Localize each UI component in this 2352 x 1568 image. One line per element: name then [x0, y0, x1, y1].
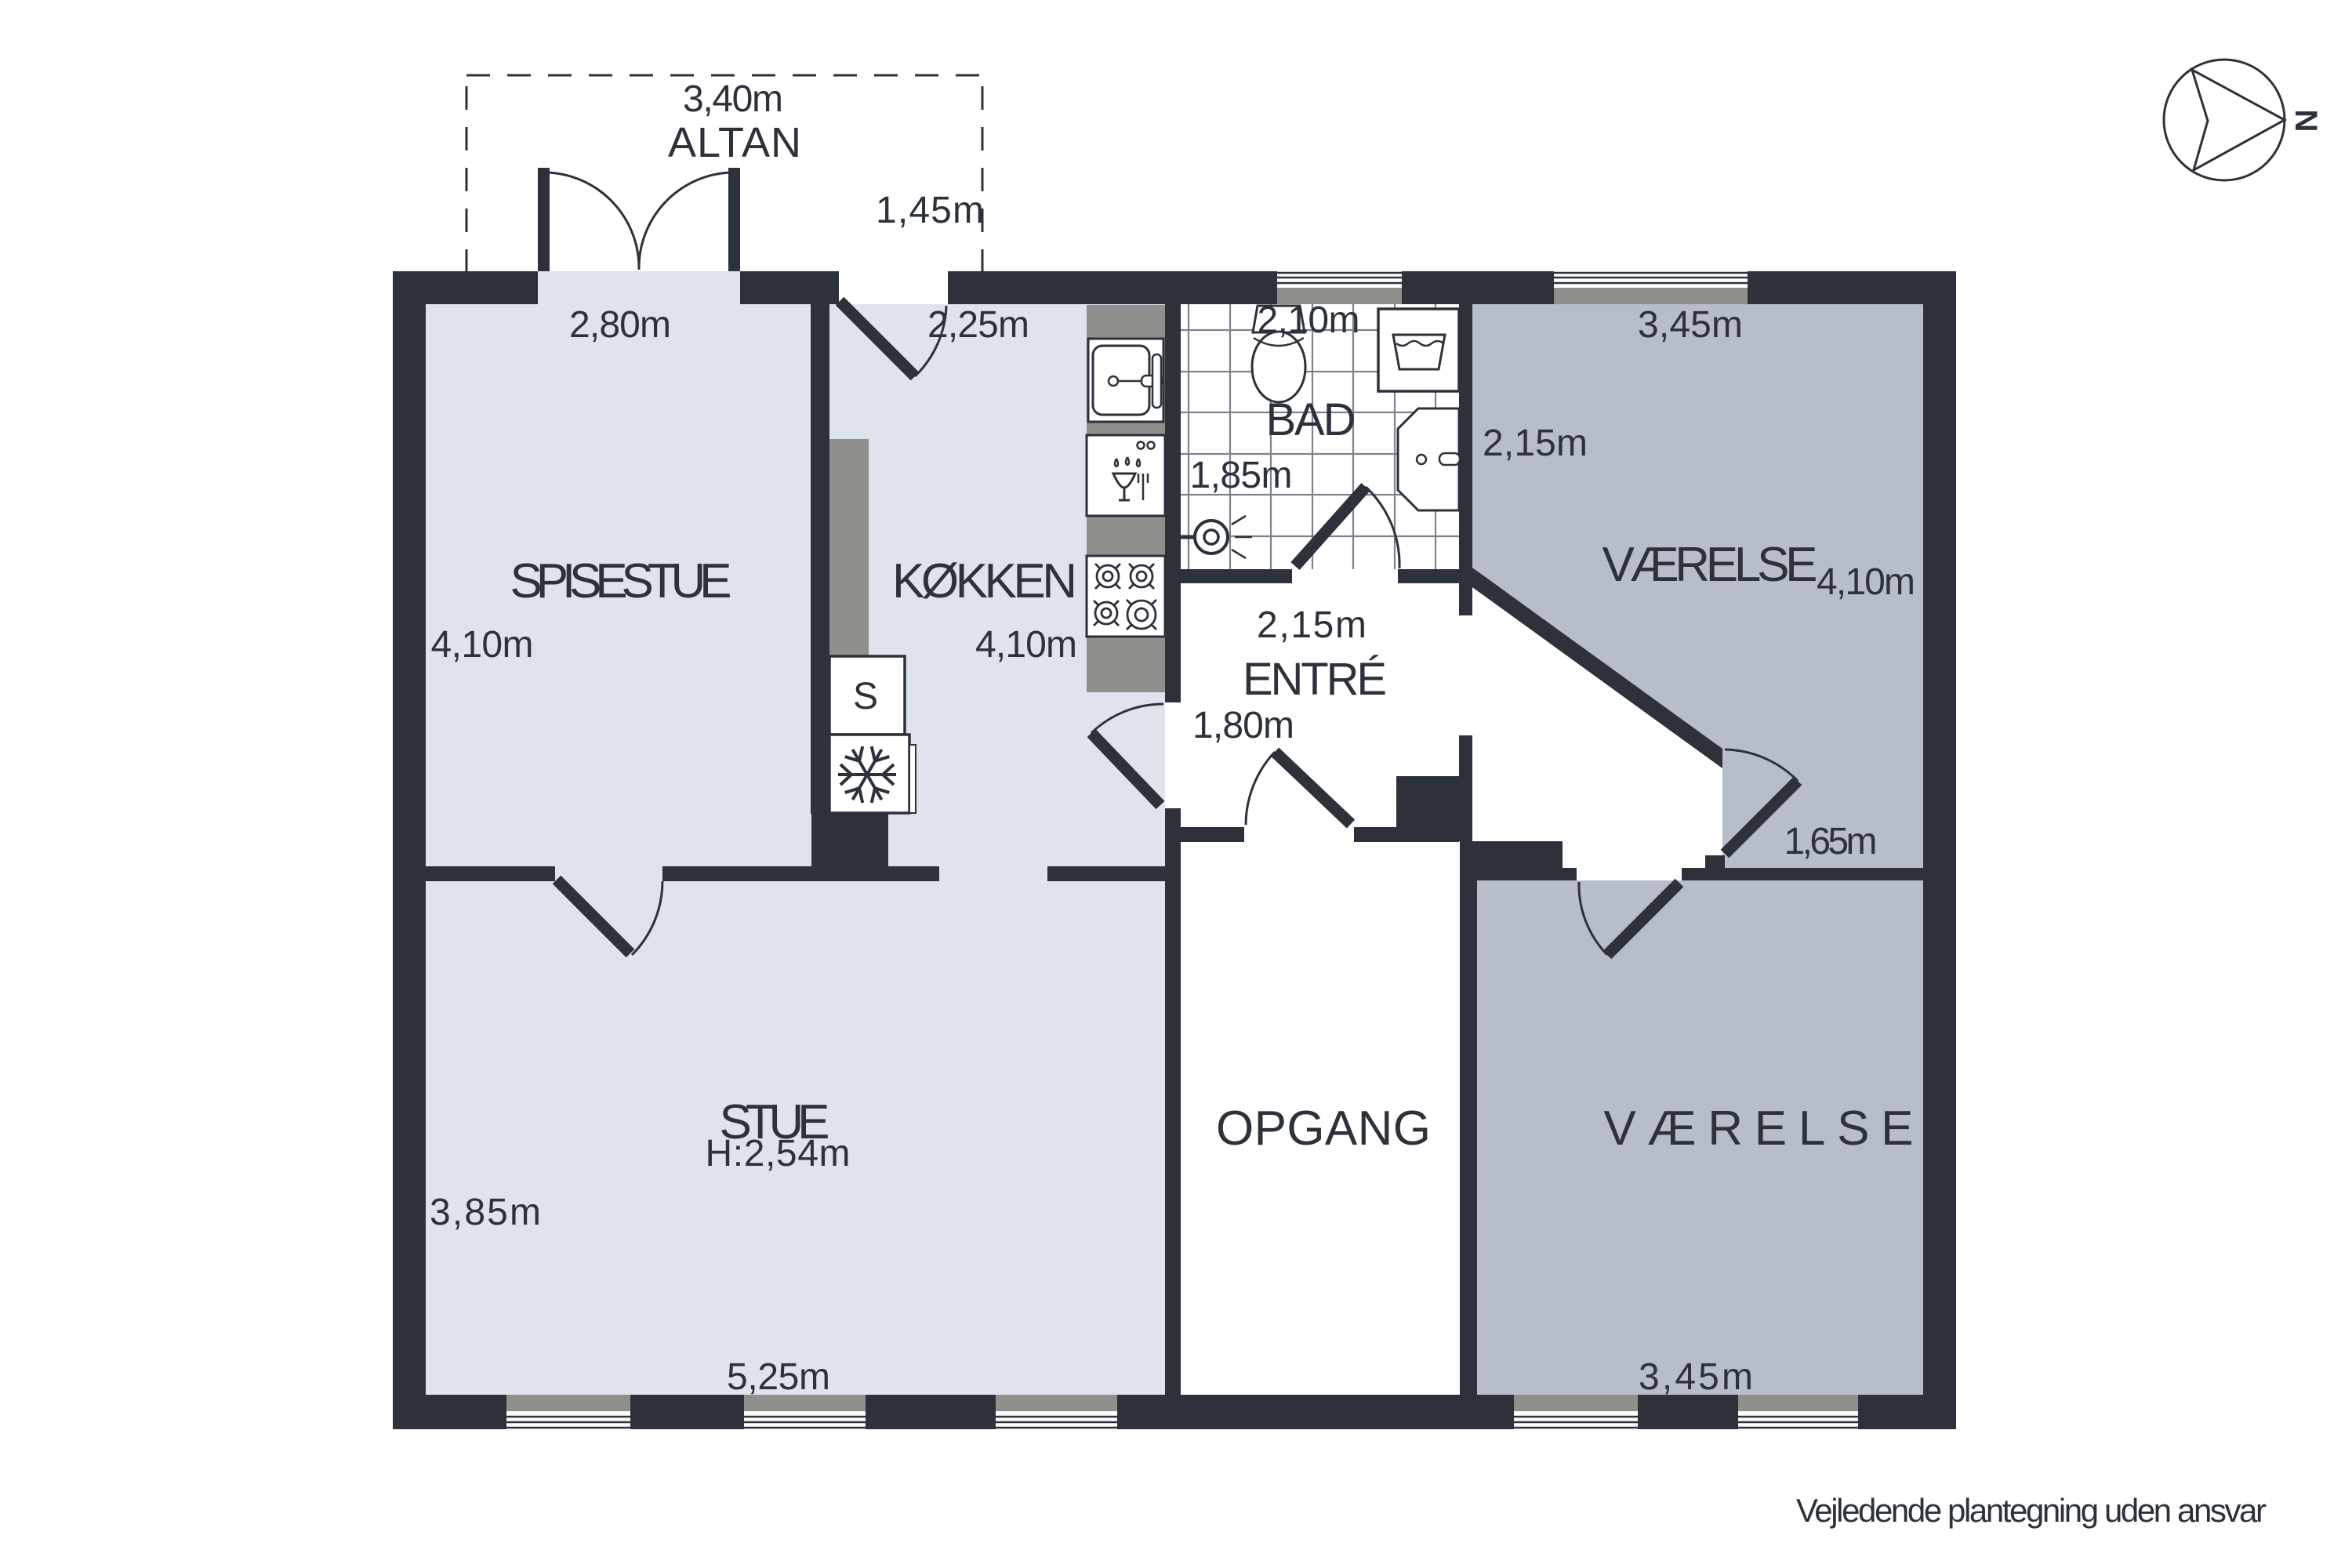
- svg-text:5,25m: 5,25m: [727, 1356, 830, 1398]
- svg-text:3,85m: 3,85m: [430, 1192, 541, 1233]
- svg-text:2,10m: 2,10m: [1258, 299, 1360, 341]
- svg-text:KØKKEN: KØKKEN: [892, 554, 1077, 608]
- svg-text:3,40m: 3,40m: [683, 78, 783, 120]
- svg-text:3,45m: 3,45m: [1639, 1356, 1753, 1398]
- svg-text:3,45m: 3,45m: [1638, 304, 1743, 346]
- svg-text:4,10m: 4,10m: [1817, 561, 1915, 603]
- svg-text:1,45m: 1,45m: [876, 190, 984, 231]
- svg-text:S: S: [853, 676, 878, 717]
- svg-text:BAD: BAD: [1266, 394, 1356, 445]
- svg-text:OPGANG: OPGANG: [1216, 1102, 1431, 1156]
- svg-text:1,85m: 1,85m: [1190, 455, 1293, 496]
- svg-text:4,10m: 4,10m: [975, 624, 1077, 666]
- svg-text:2,80m: 2,80m: [569, 304, 671, 346]
- svg-text:4,10m: 4,10m: [431, 624, 534, 666]
- svg-text:1,65m: 1,65m: [1784, 821, 1878, 862]
- svg-text:Vejledende plantegning uden an: Vejledende plantegning uden ansvar: [1796, 1492, 2267, 1529]
- svg-text:2,25m: 2,25m: [927, 304, 1029, 346]
- svg-text:2,15m: 2,15m: [1483, 423, 1588, 464]
- svg-text:VÆRELSE: VÆRELSE: [1602, 538, 1818, 592]
- svg-text:SPISESTUE: SPISESTUE: [510, 554, 732, 608]
- svg-text:1,80m: 1,80m: [1192, 705, 1294, 746]
- svg-text:VÆRELSE: VÆRELSE: [1604, 1102, 1914, 1156]
- svg-text:ENTRÉ: ENTRÉ: [1243, 654, 1387, 705]
- svg-text:H:2,54m: H:2,54m: [706, 1133, 851, 1174]
- svg-text:N: N: [2288, 110, 2323, 132]
- svg-text:ALTAN: ALTAN: [668, 119, 801, 166]
- svg-text:2,15m: 2,15m: [1257, 604, 1367, 646]
